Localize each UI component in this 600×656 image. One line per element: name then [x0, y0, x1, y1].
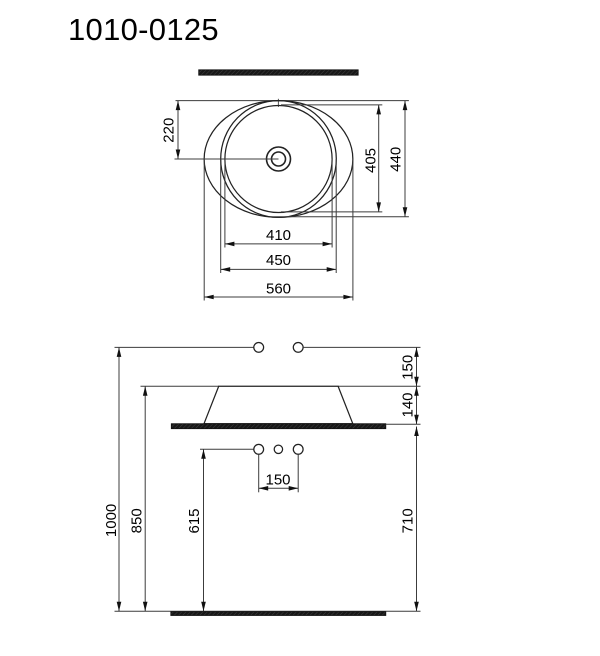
svg-text:405: 405	[362, 148, 379, 173]
svg-text:615: 615	[186, 508, 203, 533]
svg-text:220: 220	[161, 118, 178, 143]
svg-text:140: 140	[400, 392, 417, 417]
svg-text:560: 560	[266, 280, 291, 297]
svg-text:710: 710	[400, 508, 417, 533]
svg-text:440: 440	[388, 147, 405, 172]
svg-text:410: 410	[266, 227, 291, 244]
svg-text:450: 450	[266, 252, 291, 269]
svg-text:850: 850	[128, 508, 145, 533]
svg-text:1000: 1000	[103, 504, 120, 537]
svg-text:150: 150	[400, 355, 417, 380]
svg-text:1010-0125: 1010-0125	[68, 12, 219, 47]
svg-text:150: 150	[265, 472, 290, 489]
